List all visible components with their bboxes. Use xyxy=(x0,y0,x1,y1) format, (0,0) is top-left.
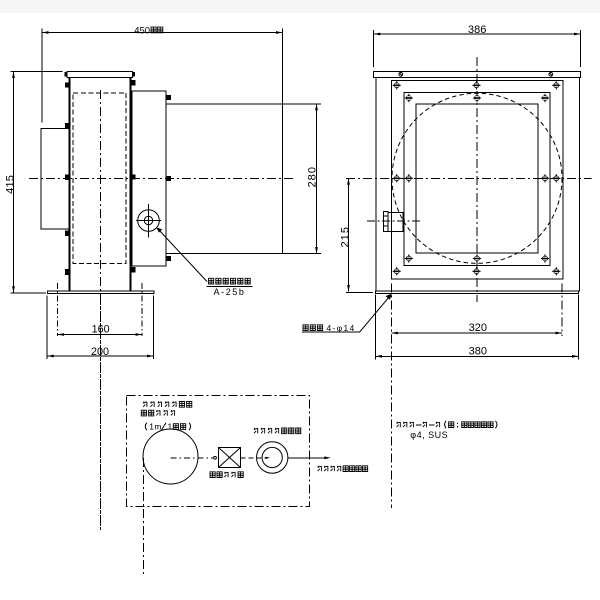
svg-text:215: 215 xyxy=(339,226,351,248)
svg-text:320: 320 xyxy=(469,322,487,334)
svg-text:φ4, SUS: φ4, SUS xyxy=(410,430,448,440)
svg-text:200: 200 xyxy=(91,346,109,358)
svg-text:450: 450 xyxy=(134,25,150,36)
svg-text:280: 280 xyxy=(307,166,319,188)
svg-text:A-25b: A-25b xyxy=(214,287,246,297)
svg-text:1m: 1m xyxy=(149,422,162,432)
svg-text:380: 380 xyxy=(469,346,487,358)
svg-text:1: 1 xyxy=(168,422,173,432)
svg-text:386: 386 xyxy=(468,24,486,36)
svg-text:415: 415 xyxy=(5,175,17,194)
